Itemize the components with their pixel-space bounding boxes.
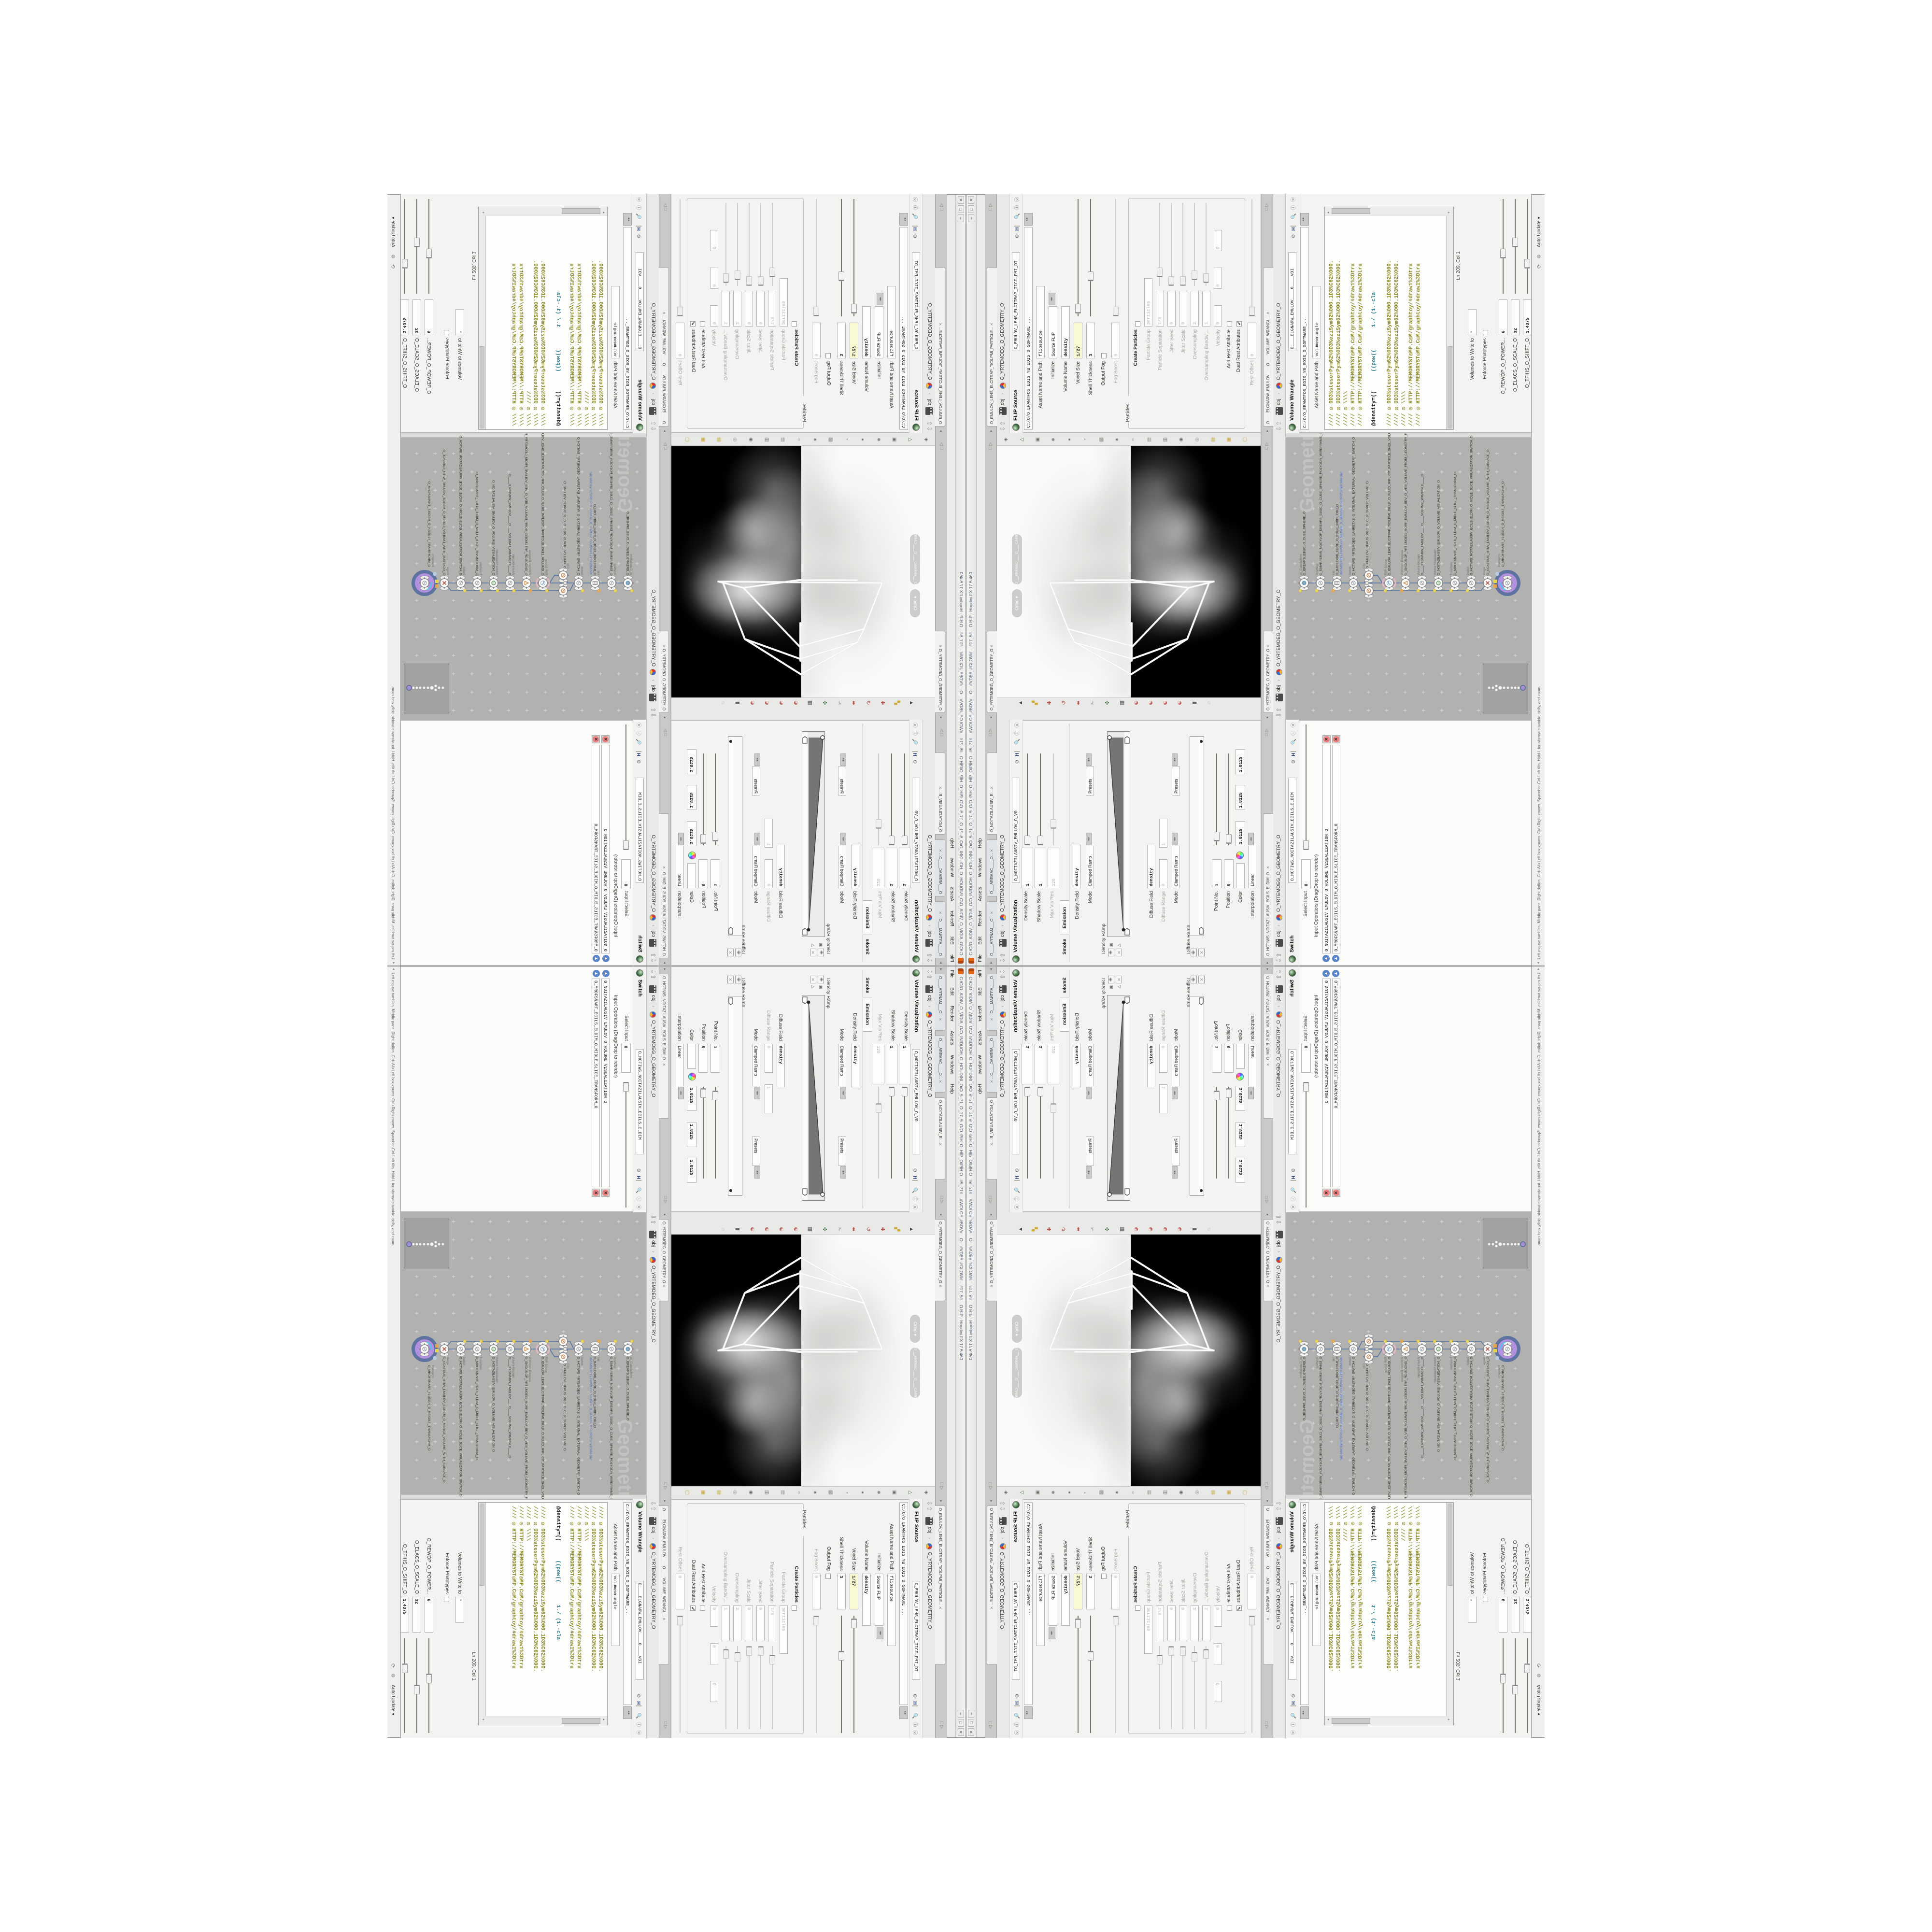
svg-text:Merge: Merge	[1483, 567, 1486, 575]
svg-text:Transform: Transform	[431, 1365, 434, 1378]
svg-text:O_NOITAZILAUSIV_EMULOV_O_VOLUM: O_NOITAZILAUSIV_EMULOV_O_VOLUME_VISUALIZ…	[1437, 480, 1441, 575]
svg-text:O_MROFSNART_ECILS_ELDIM_O_MIDL: O_MROFSNART_ECILS_ELDIM_O_MIDLE_SLICE_TR…	[475, 472, 479, 575]
svg-text:O_BJO.LDRIB_EGDE_O_EDGE_BRIDL.: O_BJO.LDRIB_EGDE_O_EDGE_BRIDL.OBJ_O	[593, 1357, 597, 1428]
svg-text:O_NOITAZILAUSIV_EMULOV_O_VOLUM: O_NOITAZILAUSIV_EMULOV_O_VOLUME_VISUALIZ…	[492, 480, 495, 575]
svg-text:O_MROFSNART_ECILS_ELDIM_O_MIDL: O_MROFSNART_ECILS_ELDIM_O_MIDLE_SLICE_TR…	[1454, 1357, 1457, 1460]
svg-text:O_HCTIWS_NOITAZILAUSIV_ECILS_E: O_HCTIWS_NOITAZILAUSIV_ECILS_ELDIM_O_MID…	[459, 436, 462, 575]
svg-text:Merge: Merge	[1483, 1357, 1486, 1365]
svg-text:O_MROFSNART_ECILS_ELDIM_O_MIDL: O_MROFSNART_ECILS_ELDIM_O_MIDLE_SLICE_TR…	[475, 1357, 479, 1460]
svg-text:O_HCTIWS_YRTEMOEG_LANRETXE_O_I: O_HCTIWS_YRTEMOEG_LANRETXE_O_INTERNAL_EX…	[1352, 437, 1356, 575]
svg-text:Transform: Transform	[479, 1357, 482, 1370]
svg-text:Volume Wrangle: Volume Wrangle	[511, 1357, 514, 1378]
svg-text:O_HCTIWS_YRTEMOEG_LANRETXE_O_I: O_HCTIWS_YRTEMOEG_LANRETXE_O_INTERNAL_EX…	[1352, 1357, 1356, 1495]
svg-text:O_ECAFRUS_HTIW_EMULOV_EGREM_O_: O_ECAFRUS_HTIW_EMULOV_EGREM_O_MERGE_VOLU…	[442, 1357, 446, 1482]
svg-text:Volume Visualization: Volume Visualization	[495, 1357, 498, 1383]
svg-text:O_EMARFERIW_NOGYLOP_EREHPS_EBU: O_EMARFERIW_NOGYLOP_EREHPS_EBUC_O_CUBE_S…	[1320, 433, 1323, 575]
svg-text:FLIP Source: FLIP Source	[544, 559, 547, 575]
svg-text:O_HCTIWS_NOITAZILAUSIV_ECILS_E: O_HCTIWS_NOITAZILAUSIV_ECILS_ELDIM_O_MID…	[1470, 436, 1474, 575]
svg-text:O_NOITAZILAUSIV_EMULOV_O_VOLUM: O_NOITAZILAUSIV_EMULOV_O_VOLUME_VISUALIZ…	[1437, 1357, 1441, 1452]
svg-text:Volume Visualization: Volume Visualization	[1434, 549, 1437, 575]
svg-text:Switch: Switch	[462, 1357, 465, 1365]
svg-text:O_SNOGILOP_YRTEMOEG_MORF_EMULO: O_SNOGILOP_YRTEMOEG_MORF_EMULOV_BDV_O_VD…	[525, 433, 528, 575]
svg-text:FLIP Source: FLIP Source	[1385, 1357, 1388, 1373]
svg-text:PolyWire: PolyWire	[1316, 1357, 1319, 1369]
svg-text:JBO.M03,PETS,TRPOLS.O_5SUNEG_O: JBO.M03,PETS,TRPOLS.O_5SUNEG_O_GENUS5_O.…	[589, 471, 592, 575]
svg-text:O_EMARFERIW_NOGYLOP_EREHPS_EBU: O_EMARFERIW_NOGYLOP_EREHPS_EBUC_O_CUBE_S…	[1320, 1357, 1323, 1499]
svg-text:PolyWire: PolyWire	[613, 1357, 616, 1369]
svg-text:O_MROFSNART_ECILS_ELDIM_O_MIDL: O_MROFSNART_ECILS_ELDIM_O_MIDLE_SLICE_TR…	[1454, 472, 1457, 575]
svg-text:O_EREHPS_EBUC_O_CUBE_SPHERE_O: O_EREHPS_EBUC_O_CUBE_SPHERE_O	[1303, 511, 1307, 575]
svg-text:O_MROFSNART_TLUSER_O_RESULT_TR: O_MROFSNART_TLUSER_O_RESULT_TRANSFORM_O	[1502, 1365, 1505, 1451]
svg-text:O_MROFSNART_TLUSER_O_RESULT_TR: O_MROFSNART_TLUSER_O_RESULT_TRANSFORM_O	[427, 1365, 431, 1451]
svg-text:O_HCTIWS_NOITAZILAUSIV_ECILS_E: O_HCTIWS_NOITAZILAUSIV_ECILS_ELDIM_O_MID…	[459, 1357, 462, 1496]
svg-text:O_BJO.LDRIB_EGDE_O_EDGE_BRIDL.: O_BJO.LDRIB_EGDE_O_EDGE_BRIDL.OBJ_O	[1336, 504, 1339, 575]
svg-text:O_EMULOV_REPUS_PILC_O_CLIP_SUP: O_EMULOV_REPUS_PILC_O_CLIP_SUPER_VOLUME_…	[563, 481, 566, 568]
svg-text:VDB from Polygons: VDB from Polygons	[1401, 550, 1404, 575]
svg-text:O_HCTIWS_NOITAZILAUSIV_ECILS_E: O_HCTIWS_NOITAZILAUSIV_ECILS_ELDIM_O_MID…	[1470, 1357, 1474, 1496]
svg-text:O_EMARFERIW_NOGYLOP_EREHPS_EBU: O_EMARFERIW_NOGYLOP_EREHPS_EBUC_O_CUBE_S…	[610, 1357, 613, 1499]
svg-text:O_MROFSNART_TLUSER_O_RESULT_TR: O_MROFSNART_TLUSER_O_RESULT_TRANSFORM_O	[427, 481, 431, 567]
svg-text:O____ELGNARW_EMULOV____O____VO: O____ELGNARW_EMULOV____O____VOLUME_WRANG…	[508, 474, 511, 575]
svg-text:an_CubeSphere: an_CubeSphere	[1300, 554, 1303, 575]
svg-text:Transform: Transform	[431, 554, 434, 567]
svg-text:Switch: Switch	[1467, 567, 1470, 575]
svg-text:O_EMULOV_REPUS_PILC_O_CLIP_SUP: O_EMULOV_REPUS_PILC_O_CLIP_SUPER_VOLUME_…	[1366, 481, 1369, 568]
svg-text:Volume Visualization: Volume Visualization	[1434, 1357, 1437, 1383]
svg-text:File: File	[597, 1357, 599, 1362]
svg-text:PolyWire: PolyWire	[613, 563, 616, 575]
svg-text:VDB from Polygons: VDB from Polygons	[528, 550, 531, 575]
svg-text:an_CubeSphere: an_CubeSphere	[629, 1357, 632, 1378]
svg-text:an_CubeSphere: an_CubeSphere	[1300, 1357, 1303, 1378]
svg-text:O_EMULOV_REPUS_PILC_O_CLIP_SUP: O_EMULOV_REPUS_PILC_O_CLIP_SUPER_VOLUME_…	[1366, 1364, 1369, 1451]
svg-text:File: File	[1333, 570, 1335, 575]
svg-text:Merge: Merge	[446, 1357, 449, 1365]
svg-text:Transform: Transform	[1498, 554, 1501, 567]
svg-text:O____ELGNARW_EMULOV____O____VO: O____ELGNARW_EMULOV____O____VOLUME_WRANG…	[1421, 474, 1424, 575]
svg-text:O_EREHPS_EBUC_O_CUBE_SPHERE_O: O_EREHPS_EBUC_O_CUBE_SPHERE_O	[626, 1357, 629, 1421]
svg-text:File: File	[597, 570, 599, 575]
svg-text:O_MROFSNART_TLUSER_O_RESULT_TR: O_MROFSNART_TLUSER_O_RESULT_TRANSFORM_O	[1502, 481, 1505, 567]
svg-text:O_EMULOV_REPUS_PILC_O_CLIP_SUP: O_EMULOV_REPUS_PILC_O_CLIP_SUPER_VOLUME_…	[563, 1364, 566, 1451]
svg-text:Switch: Switch	[1349, 567, 1352, 575]
svg-text:Transform: Transform	[1450, 562, 1453, 575]
svg-text:O_SNOGILOP_YRTEMOEG_MORF_EMULO: O_SNOGILOP_YRTEMOEG_MORF_EMULOV_BDV_O_VD…	[1405, 1357, 1408, 1499]
svg-text:O_BJO.LDRIB_EGDE_O_EDGE_BRIDL.: O_BJO.LDRIB_EGDE_O_EDGE_BRIDL.OBJ_O	[593, 504, 597, 575]
svg-text:O_EMULOV_LEHS_ELCITRAP_TICILPM: O_EMULOV_LEHS_ELCITRAP_TICILPMI_DIULF_O_…	[1388, 1357, 1392, 1499]
svg-text:O_EMULOV_LEHS_ELCITRAP_TICILPM: O_EMULOV_LEHS_ELCITRAP_TICILPMI_DIULF_O_…	[541, 433, 544, 575]
svg-text:JBO.M03,PETS,TRPOLS.O_5SUNEG_O: JBO.M03,PETS,TRPOLS.O_5SUNEG_O_GENUS5_O.…	[1340, 471, 1343, 575]
svg-text:Volume Wrangle: Volume Wrangle	[1418, 1357, 1421, 1378]
svg-text:O_SNOGILOP_YRTEMOEG_MORF_EMULO: O_SNOGILOP_YRTEMOEG_MORF_EMULOV_BDV_O_VD…	[525, 1357, 528, 1499]
svg-text:Merge: Merge	[446, 567, 449, 575]
svg-text:Volume Visualization: Volume Visualization	[495, 549, 498, 575]
svg-text:O_EREHPS_EBUC_O_CUBE_SPHERE_O: O_EREHPS_EBUC_O_CUBE_SPHERE_O	[1303, 1357, 1307, 1421]
svg-text:VDB from Polygons: VDB from Polygons	[528, 1357, 531, 1382]
svg-text:JBO.M03,PETS,TRPOLS.O_5SUNEG_O: JBO.M03,PETS,TRPOLS.O_5SUNEG_O_GENUS5_O.…	[1340, 1357, 1343, 1461]
svg-text:O_HCTIWS_YRTEMOEG_LANRETXE_O_I: O_HCTIWS_YRTEMOEG_LANRETXE_O_INTERNAL_EX…	[577, 1357, 580, 1495]
svg-text:PolyWire: PolyWire	[1316, 563, 1319, 575]
svg-text:O_EREHPS_EBUC_O_CUBE_SPHERE_O: O_EREHPS_EBUC_O_CUBE_SPHERE_O	[626, 511, 629, 575]
svg-text:O_ECAFRUS_HTIW_EMULOV_EGREM_O_: O_ECAFRUS_HTIW_EMULOV_EGREM_O_MERGE_VOLU…	[442, 450, 446, 575]
svg-text:Switch: Switch	[462, 567, 465, 575]
svg-text:O_SNOGILOP_YRTEMOEG_MORF_EMULO: O_SNOGILOP_YRTEMOEG_MORF_EMULOV_BDV_O_VD…	[1405, 433, 1408, 575]
svg-text:JBO.M03,PETS,TRPOLS.O_5SUNEG_O: JBO.M03,PETS,TRPOLS.O_5SUNEG_O_GENUS5_O.…	[589, 1357, 592, 1461]
svg-text:FLIP Source: FLIP Source	[1385, 559, 1388, 575]
svg-text:File: File	[1333, 1357, 1335, 1362]
svg-text:Transform: Transform	[479, 562, 482, 575]
svg-text:Volume Wrangle: Volume Wrangle	[1418, 554, 1421, 575]
svg-text:Switch: Switch	[1349, 1357, 1352, 1365]
svg-text:O_NOITAZILAUSIV_EMULOV_O_VOLUM: O_NOITAZILAUSIV_EMULOV_O_VOLUME_VISUALIZ…	[492, 1357, 495, 1452]
svg-text:Switch: Switch	[580, 1357, 583, 1365]
svg-text:Switch: Switch	[1467, 1357, 1470, 1365]
svg-text:an_CubeSphere: an_CubeSphere	[629, 554, 632, 575]
svg-text:Transform: Transform	[1450, 1357, 1453, 1370]
svg-text:O_ECAFRUS_HTIW_EMULOV_EGREM_O_: O_ECAFRUS_HTIW_EMULOV_EGREM_O_MERGE_VOLU…	[1487, 450, 1490, 575]
svg-text:O_EMULOV_LEHS_ELCITRAP_TICILPM: O_EMULOV_LEHS_ELCITRAP_TICILPMI_DIULF_O_…	[1388, 433, 1392, 575]
svg-text:O_ECAFRUS_HTIW_EMULOV_EGREM_O_: O_ECAFRUS_HTIW_EMULOV_EGREM_O_MERGE_VOLU…	[1487, 1357, 1490, 1482]
svg-text:FLIP Source: FLIP Source	[544, 1357, 547, 1373]
svg-text:Volume Wrangle: Volume Wrangle	[511, 554, 514, 575]
svg-text:Switch: Switch	[580, 567, 583, 575]
svg-text:O____ELGNARW_EMULOV____O____VO: O____ELGNARW_EMULOV____O____VOLUME_WRANG…	[508, 1357, 511, 1458]
svg-text:Transform: Transform	[1498, 1365, 1501, 1378]
svg-text:O_BJO.LDRIB_EGDE_O_EDGE_BRIDL.: O_BJO.LDRIB_EGDE_O_EDGE_BRIDL.OBJ_O	[1336, 1357, 1339, 1428]
svg-text:O_EMULOV_LEHS_ELCITRAP_TICILPM: O_EMULOV_LEHS_ELCITRAP_TICILPMI_DIULF_O_…	[541, 1357, 544, 1499]
svg-text:O____ELGNARW_EMULOV____O____VO: O____ELGNARW_EMULOV____O____VOLUME_WRANG…	[1421, 1357, 1424, 1458]
svg-text:O_HCTIWS_YRTEMOEG_LANRETXE_O_I: O_HCTIWS_YRTEMOEG_LANRETXE_O_INTERNAL_EX…	[577, 437, 580, 575]
svg-text:O_EMARFERIW_NOGYLOP_EREHPS_EBU: O_EMARFERIW_NOGYLOP_EREHPS_EBUC_O_CUBE_S…	[610, 433, 613, 575]
svg-text:VDB from Polygons: VDB from Polygons	[1401, 1357, 1404, 1382]
